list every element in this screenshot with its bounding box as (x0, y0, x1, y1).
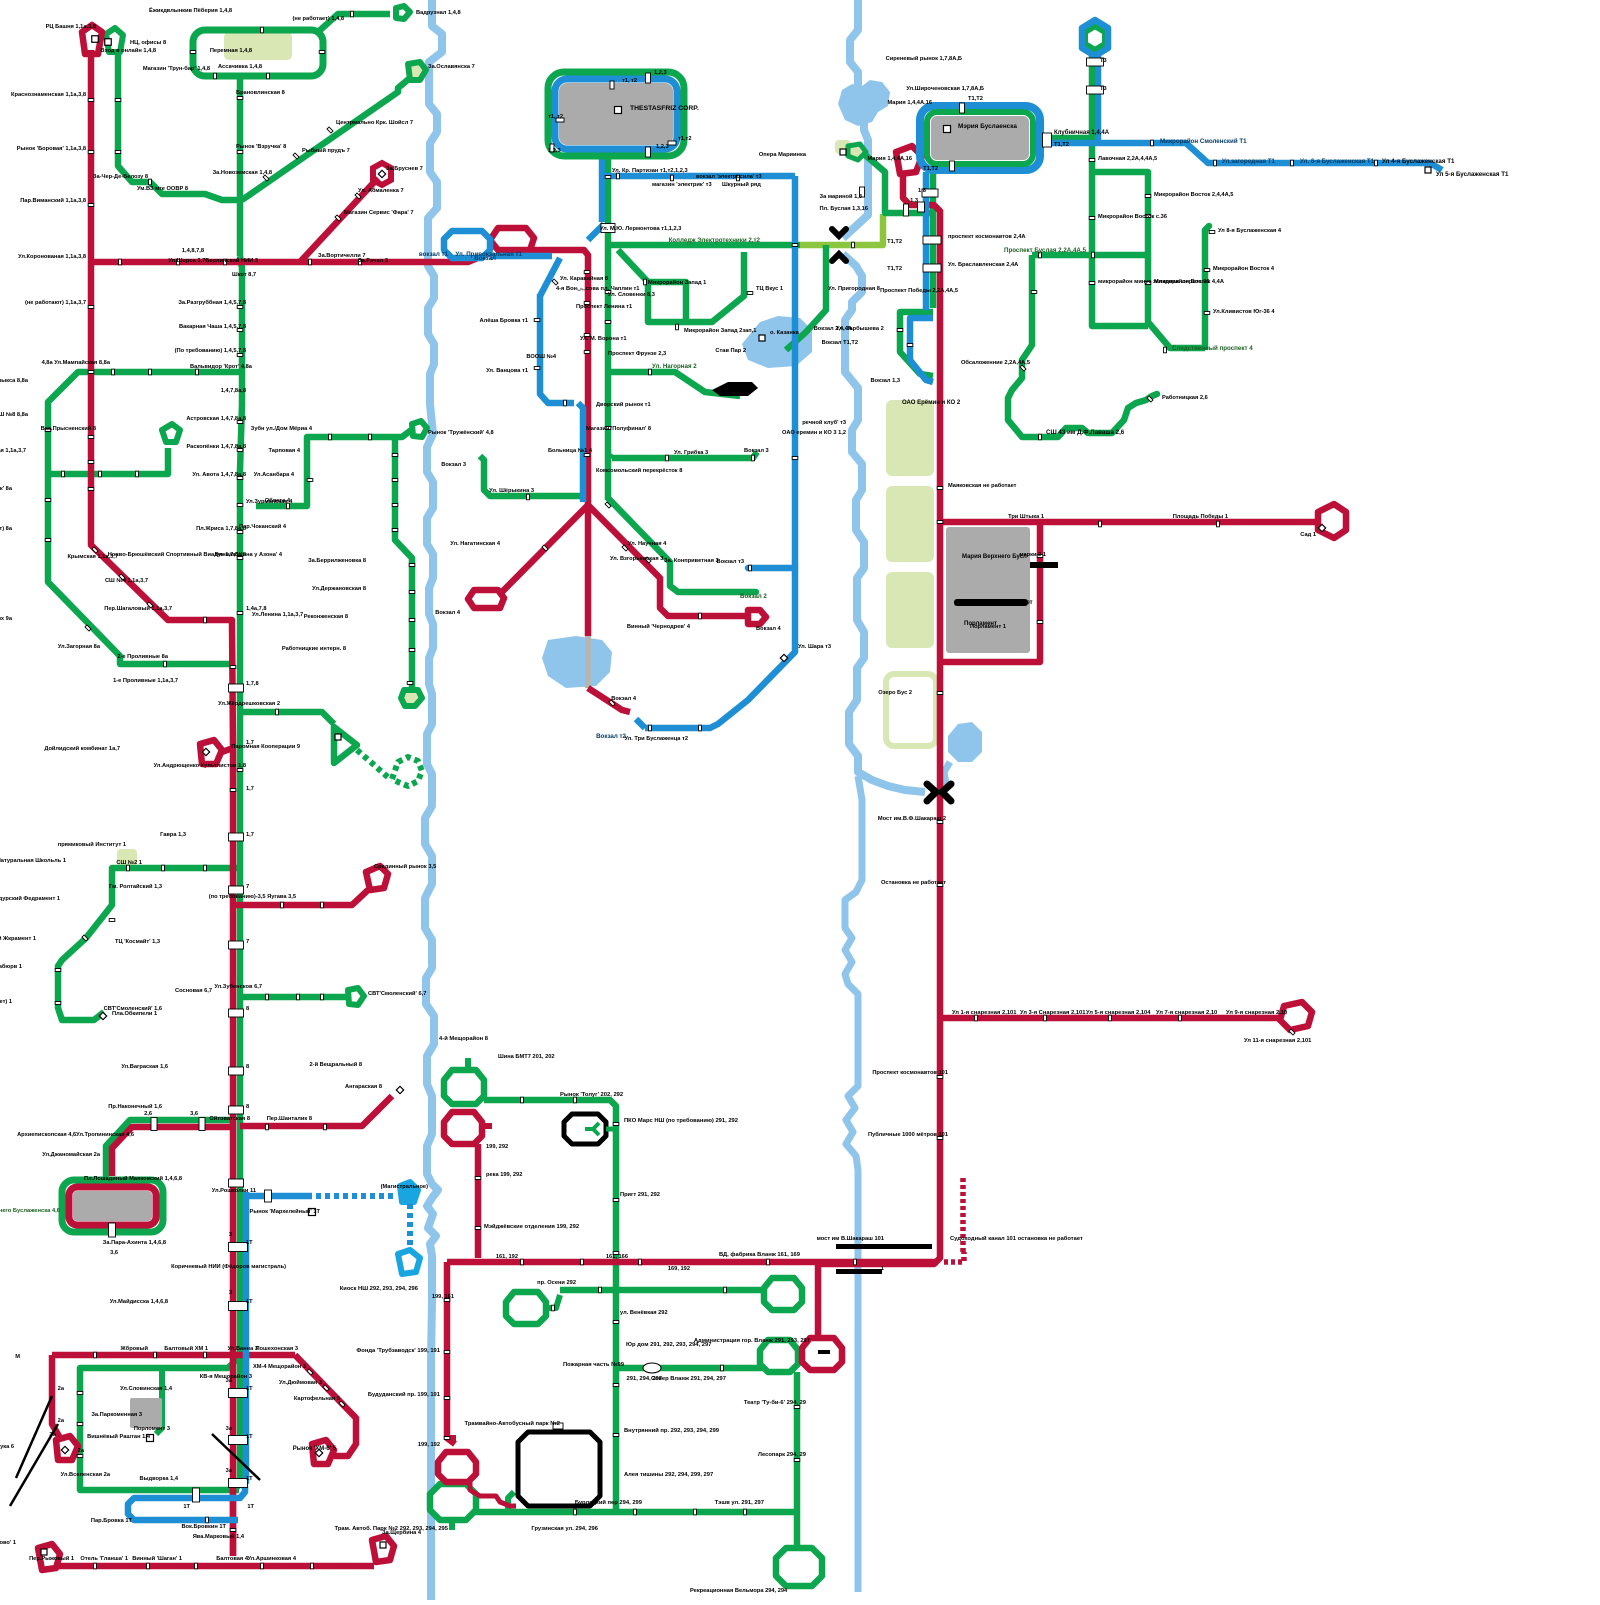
svg-text:проспект космонавтов 2,4А: проспект космонавтов 2,4А (948, 234, 1026, 240)
svg-text:Ассачивка 1,4,8: Ассачивка 1,4,8 (218, 64, 262, 70)
svg-text:7: 7 (246, 939, 249, 945)
svg-text:Вокзал 3: Вокзал 3 (744, 448, 769, 454)
svg-text:Мария 1,4,4А,16: Мария 1,4,4А,16 (887, 100, 932, 106)
svg-text:Вальвидор 'Крот' 4,8а: Вальвидор 'Крот' 4,8а (190, 364, 253, 370)
svg-text:Ул 7-я снарезная 2,10: Ул 7-я снарезная 2,10 (1156, 1010, 1217, 1016)
svg-text:Публичные 1000 мётров 101: Публичные 1000 мётров 101 (868, 1131, 948, 1138)
svg-text:Ойтоватская 8: Ойтоватская 8 (209, 1115, 250, 1122)
svg-text:Ул. М. Ворона т1: Ул. М. Ворона т1 (580, 336, 627, 342)
svg-text:Архиепископская 4,6Ул.Тропинин: Архиепископская 4,6Ул.Тропининская 4,6 (17, 1132, 134, 1138)
svg-text:ул. Венёвкая 292: ул. Венёвкая 292 (620, 1310, 668, 1316)
svg-text:Т1,Т2: Т1,Т2 (968, 96, 983, 102)
svg-text:Колледж Электротехники 2,т2: Колледж Электротехники 2,т2 (669, 237, 761, 244)
svg-text:1,7: 1,7 (246, 786, 254, 792)
svg-text:Алея тишины 292, 294, 299, 297: Алея тишины 292, 294, 299, 297 (624, 1472, 713, 1478)
svg-text:Лавочная 2,2А,4,4А,5: Лавочная 2,2А,4,4А,5 (1098, 156, 1157, 162)
svg-text:169, 192: 169, 192 (668, 1266, 690, 1272)
svg-text:Мария 1,4,4А,16: Мария 1,4,4А,16 (867, 156, 912, 162)
svg-text:речной клуб' т3: речной клуб' т3 (802, 419, 846, 426)
svg-text:Дворский рынок т1: Дворский рынок т1 (596, 401, 651, 408)
svg-text:1,4,8,7,8: 1,4,8,7,8 (182, 248, 204, 254)
svg-text:Дойлидский комбинат 1а,7: Дойлидский комбинат 1а,7 (44, 745, 120, 752)
svg-text:Бурлацкий пер 294, 299: Бурлацкий пер 294, 299 (575, 1499, 643, 1506)
svg-text:Ул.Шорса 3,7Берлинский НИИ 3: Ул.Шорса 3,7Берлинский НИИ 3 (168, 257, 258, 264)
svg-text:(по требованию)-3,5 Яугава 3,5: (по требованию)-3,5 Яугава 3,5 (209, 893, 296, 900)
svg-text:Комсомольский перекрёсток 8: Комсомольский перекрёсток 8 (596, 467, 682, 474)
svg-text:Ул. Словенки 8,3: Ул. Словенки 8,3 (608, 292, 655, 298)
svg-text:Тарповая 4: Тарповая 4 (268, 448, 300, 454)
svg-text:Больница №1 4: Больница №1 4 (548, 448, 593, 454)
svg-text:Балтовая 4: Балтовая 4 (216, 1556, 249, 1562)
svg-text:Гм. Ролтайский 1,3: Гм. Ролтайский 1,3 (109, 883, 162, 890)
svg-text:Порламент 1: Порламент 1 (970, 624, 1006, 630)
svg-text:Тэшв ул. 291, 297: Тэшв ул. 291, 297 (715, 1500, 764, 1506)
svg-text:1,2,3: 1,2,3 (548, 148, 561, 154)
svg-text:1,3: 1,3 (910, 198, 918, 204)
svg-text:Фонда 'Трубзаводск' 199, 191: Фонда 'Трубзаводск' 199, 191 (356, 1347, 440, 1354)
svg-text:8: 8 (246, 1104, 249, 1110)
svg-text:Вход в онлайн 1,4,8: Вход в онлайн 1,4,8 (100, 47, 156, 54)
svg-text:(По требованию) 1,4,5,7,8: (По требованию) 1,4,5,7,8 (175, 347, 246, 354)
svg-text:Ул.Асанбара 4: Ул.Асанбара 4 (254, 471, 295, 478)
svg-text:Ул.Словинская 1,4: Ул.Словинская 1,4 (120, 1386, 173, 1392)
svg-text:Ул.Ванна 3: Ул.Ванна 3 (228, 1346, 258, 1352)
svg-text:1Т: 1Т (247, 1504, 254, 1510)
svg-text:Пл. Буслая 1,3,16: Пл. Буслая 1,3,16 (819, 206, 868, 212)
svg-text:Т1,Т2: Т1,Т2 (887, 239, 902, 245)
svg-text:ПКО Марс НШ (по требованию) 29: ПКО Марс НШ (по требованию) 291, 292 (624, 1117, 738, 1124)
svg-text:Т3: Т3 (1100, 58, 1107, 64)
svg-text:4-й Мещорайон 8: 4-й Мещорайон 8 (439, 1035, 489, 1042)
svg-text:За.Беррилженовка 8: За.Беррилженовка 8 (308, 558, 366, 564)
svg-text:Зубн ул./Дом Мёриа 4: Зубн ул./Дом Мёриа 4 (251, 425, 313, 432)
svg-text:Ул 3-я Снарезная 2,101: Ул 3-я Снарезная 2,101 (1020, 1010, 1086, 1016)
svg-text:Ул 8-я Буслаженская 4: Ул 8-я Буслаженская 4 (1218, 228, 1282, 234)
svg-text:Мэйджёвские отделения 199, 292: Мэйджёвские отделения 199, 292 (484, 1223, 579, 1230)
svg-text:Клубничная 1,4,4А: Клубничная 1,4,4А (1054, 129, 1110, 136)
svg-text:1: 1 (881, 1266, 884, 1272)
svg-text:Астровская 1,4,7,8а,8: Астровская 1,4,7,8а,8 (186, 416, 246, 422)
svg-text:Ул. Каравайная 8: Ул. Каравайная 8 (560, 275, 608, 282)
svg-text:1,4,7,8а,8: 1,4,7,8а,8 (221, 388, 246, 394)
svg-text:Ул.Ленина 1,1а,3,7: Ул.Ленина 1,1а,3,7 (252, 612, 303, 618)
svg-text:Вокзал 4: Вокзал 4 (435, 610, 461, 616)
svg-text:161, 192: 161, 192 (496, 1254, 518, 1260)
svg-text:Винная'Шина у Азона' 4: Винная'Шина у Азона' 4 (215, 552, 283, 558)
svg-text:Ул. Шёрыкина 3: Ул. Шёрыкина 3 (489, 488, 534, 494)
svg-text:За мариной 1,3: За мариной 1,3 (820, 193, 862, 200)
svg-text:За.Ославянска 7: За.Ославянска 7 (428, 64, 475, 70)
svg-text:Опера Мариинка: Опера Мариинка (759, 152, 807, 158)
svg-text:РЦ Башня 1,1а,3,8: РЦ Башня 1,1а,3,8 (46, 24, 96, 30)
svg-text:За.Разгруббная 1,4,5,7,8: За.Разгруббная 1,4,5,7,8 (178, 299, 246, 306)
svg-text:Работницкая 2,6: Работницкая 2,6 (1162, 394, 1208, 401)
svg-text:За.Пара-Ахинта 1,4,6,8: За.Пара-Ахинта 1,4,6,8 (103, 1240, 166, 1246)
svg-text:Вокзал т2: Вокзал т2 (596, 733, 626, 740)
svg-text:199, 161: 199, 161 (432, 1294, 454, 1300)
svg-text:2-й Вещральный 8: 2-й Вещральный 8 (310, 1061, 362, 1068)
svg-text:Ул.Ваграская 1,6: Ул.Ваграская 1,6 (121, 1064, 168, 1070)
svg-text:Ул.Дюймовая 3: Ул.Дюймовая 3 (279, 1379, 322, 1386)
svg-text:1Т: 1Т (246, 1240, 253, 1246)
svg-text:Винный 'Шаган' 1: Винный 'Шаган' 1 (132, 1555, 182, 1562)
svg-text:Вакарная Чаша 1,4,5,7,8: Вакарная Чаша 1,4,5,7,8 (179, 324, 246, 330)
svg-text:Вокзал 3: Вокзал 3 (441, 462, 466, 468)
svg-text:Микрорайон Восток 4,4А: Микрорайон Восток 4,4А (1154, 278, 1224, 285)
svg-text:Ул.Жёрдрешковская 2: Ул.Жёрдрешковская 2 (218, 701, 280, 707)
svg-text:Вас.Прысненский 8: Вас.Прысненский 8 (41, 425, 96, 432)
svg-text:НЦ, офисы 8: НЦ, офисы 8 (130, 39, 166, 46)
svg-text:Сад 1: Сад 1 (1300, 532, 1316, 538)
svg-text:Ангараская 8: Ангараская 8 (345, 1084, 382, 1090)
svg-text:Центрмально Крк. Шойсл 7: Центрмально Крк. Шойсл 7 (336, 119, 413, 126)
svg-text:СВТ'Смоленский' 6,7: СВТ'Смоленский' 6,7 (368, 990, 426, 997)
svg-text:Ул. Пригородная 8: Ул. Пригородная 8 (828, 286, 880, 292)
svg-text:Вокзал Т1,Т2: Вокзал Т1,Т2 (822, 340, 858, 346)
svg-text:пр. Осени 292: пр. Осени 292 (537, 1280, 576, 1286)
svg-text:Остановка не работает: Остановка не работает (964, 599, 1033, 606)
svg-text:Пар.Виманский 1,1а,3,8: Пар.Виманский 1,1а,3,8 (20, 197, 86, 204)
svg-text:1Т: 1Т (246, 1299, 253, 1305)
svg-text:За.Рэчел 3: За.Рэчел 3 (358, 258, 388, 264)
svg-text:Ул. Нагатинская 4: Ул. Нагатинская 4 (450, 541, 501, 547)
svg-text:2а: 2а (58, 1386, 65, 1392)
svg-text:Микрорайон Восток 4: Микрорайон Восток 4 (1213, 265, 1275, 272)
svg-text:Ул. Ванцова т1: Ул. Ванцова т1 (486, 368, 528, 374)
svg-text:СШ №4 1,1а,3,7: СШ №4 1,1а,3,7 (105, 578, 148, 584)
svg-text:1,7,8: 1,7,8 (246, 681, 259, 687)
svg-text:Проспект Фрунзе 2,3: Проспект Фрунзе 2,3 (608, 351, 666, 357)
svg-text:Ул.Майдисска 1,4,6,8: Ул.Майдисска 1,4,6,8 (110, 1298, 168, 1305)
svg-text:199, 292: 199, 292 (486, 1144, 508, 1150)
svg-text:Север Вланж 291, 294, 297: Север Вланж 291, 294, 297 (651, 1376, 726, 1382)
svg-text:1,2,3: 1,2,3 (656, 144, 669, 150)
svg-text:1Т: 1Т (183, 1504, 190, 1510)
svg-text:Натуральная Школьль 1: Натуральная Школьль 1 (0, 858, 66, 864)
svg-text:Сосновая 6,7: Сосновая 6,7 (175, 988, 212, 994)
svg-text:2,6: 2,6 (144, 1111, 152, 1117)
svg-text:Ул 4-я Буслаженская Т1: Ул 4-я Буслаженская Т1 (1382, 158, 1455, 165)
svg-text:Выдворка 1,4: Выдворка 1,4 (140, 1476, 179, 1482)
svg-text:Паромная Кооперации 9: Паромная Кооперации 9 (231, 744, 300, 750)
svg-text:Вокзал 2: Вокзал 2 (740, 593, 767, 600)
svg-text:Ул. М.Ю. Лермонтова т1,1,2,3: Ул. М.Ю. Лермонтова т1,1,2,3 (600, 226, 681, 232)
svg-text:Ул. Три Буслаженца т2: Ул. Три Буслаженца т2 (624, 736, 688, 742)
svg-text:Пер.Шагаловый 1,1а,3,7: Пер.Шагаловый 1,1а,3,7 (104, 605, 172, 612)
svg-text:Ул 9-я снарезная 2,10: Ул 9-я снарезная 2,10 (1226, 1010, 1287, 1016)
svg-text:Проспект Победы 2,2А,4А,5: Проспект Победы 2,2А,4А,5 (880, 287, 958, 294)
svg-text:ТЦ 'Космайт' 1,3: ТЦ 'Космайт' 1,3 (115, 938, 160, 945)
svg-text:Ул. 'Тандлжёсик' 8а: Ул. 'Тандлжёсик' 8а (0, 486, 13, 492)
svg-text:Ул.Андрющенко Культлистов 1,8: Ул.Андрющенко Культлистов 1,8 (154, 763, 246, 769)
svg-text:Площадь Победы 1: Площадь Победы 1 (1173, 513, 1228, 520)
svg-text:Ул.Вселенская 2а: Ул.Вселенская 2а (61, 1472, 111, 1478)
svg-text:Театр 'Ту-би-6' 294, 29: Театр 'Ту-би-6' 294, 29 (744, 1399, 807, 1406)
svg-text:ОАО Ерёмин и КО 2: ОАО Ерёмин и КО 2 (902, 400, 961, 406)
svg-text:Сваленская 1,1а,3,7: Сваленская 1,1а,3,7 (0, 448, 26, 454)
svg-text:Вокзал 2,4,4А: Вокзал 2,4,4А (814, 326, 852, 332)
svg-text:Ул. Авота 1,4,7,8а,8: Ул. Авота 1,4,7,8а,8 (192, 472, 246, 478)
svg-text:(не работает) 8а: (не работает) 8а (0, 525, 13, 532)
svg-text:8: 8 (246, 1006, 249, 1012)
svg-text:Брановлинская 8: Брановлинская 8 (236, 90, 285, 96)
svg-text:река 199, 292: река 199, 292 (486, 1172, 522, 1178)
svg-text:Дом для престарелых 9а: Дом для престарелых 9а (0, 616, 13, 622)
svg-text:Магазин 'Трун-бар' 1,4,8: Магазин 'Трун-бар' 1,4,8 (143, 65, 210, 72)
svg-text:8: 8 (246, 1064, 249, 1070)
svg-text:Мэрия Буслаенска: Мэрия Буслаенска (958, 123, 1017, 130)
svg-text:Вокзал т3: Вокзал т3 (717, 559, 745, 565)
svg-text:Судоходный канал 101 остановка: Судоходный канал 101 остановка не работа… (950, 1235, 1083, 1242)
svg-text:Следственный проспект 4: Следственный проспект 4 (1172, 345, 1253, 352)
svg-text:1,7: 1,7 (246, 832, 254, 838)
svg-text:М: М (15, 1354, 20, 1360)
svg-text:т1,т2: т1,т2 (678, 136, 691, 142)
svg-text:Будуданский пр. 199, 191: Будуданский пр. 199, 191 (368, 1391, 441, 1398)
svg-text:Ул.Аршинковая 4: Ул.Аршинковая 4 (247, 1556, 296, 1562)
svg-text:Ул. Научная 4: Ул. Научная 4 (628, 541, 667, 547)
svg-text:3а: 3а (226, 1378, 233, 1384)
svg-text:Киоск НШ 292, 293, 294, 296: Киоск НШ 292, 293, 294, 296 (340, 1286, 419, 1292)
svg-text:Микрорайон Запад 1: Микрорайон Запад 1 (648, 279, 706, 286)
svg-text:Озеро Бус 2: Озеро Бус 2 (878, 690, 912, 696)
svg-text:Работницкие интерн. 8: Работницкие интерн. 8 (282, 645, 346, 652)
svg-text:Ул 5-я Буслаженская Т1: Ул 5-я Буслаженская Т1 (1436, 171, 1509, 178)
svg-text:Рынок 'Тружёнский' 4,8: Рынок 'Тружёнский' 4,8 (428, 429, 494, 436)
svg-text:Трам. Автоб. Парк №2 292, 293,: Трам. Автоб. Парк №2 292, 293, 294, 295 (335, 1525, 449, 1532)
svg-text:Мария Нижнего Буслаженска 4,6: Мария Нижнего Буслаженска 4,6 (0, 1208, 61, 1214)
svg-text:ВД, фабрика Вланж 161, 169: ВД, фабрика Вланж 161, 169 (719, 1251, 801, 1258)
svg-text:Администрация гор. Вланж 291,: Администрация гор. Вланж 291, 293, 297 (694, 1338, 810, 1344)
svg-text:Ул. Шара т3: Ул. Шара т3 (798, 644, 831, 650)
svg-text:3,6: 3,6 (190, 1111, 198, 1117)
svg-text:Т1,Т2: Т1,Т2 (1054, 142, 1069, 148)
svg-text:Шкурный ряд: Шкурный ряд (722, 181, 761, 188)
svg-text:Ул.Рошколаи 11: Ул.Рошколаи 11 (212, 1188, 256, 1194)
svg-text:(не работает) 1,4,8: (не работает) 1,4,8 (292, 15, 344, 22)
svg-text:Буфетофейный Жкрамент 1: Буфетофейный Жкрамент 1 (0, 935, 36, 942)
svg-text:За. Конприветная 3: За. Конприветная 3 (664, 558, 719, 564)
svg-text:Мост им.В.Ф.Шакараш 2: Мост им.В.Ф.Шакараш 2 (878, 816, 946, 822)
svg-text:Вокзал 4: Вокзал 4 (611, 696, 637, 702)
svg-text:Ул 11-я снарезная 2,101: Ул 11-я снарезная 2,101 (1244, 1038, 1312, 1044)
svg-text:Ул 1-я снарезная 2,101: Ул 1-я снарезная 2,101 (952, 1010, 1017, 1016)
svg-text:Пожарная часть №99: Пожарная часть №99 (563, 1362, 625, 1368)
svg-text:Облата 4: Облата 4 (265, 497, 291, 504)
svg-text:THESTASFRIZ CORP.: THESTASFRIZ CORP. (630, 105, 699, 112)
svg-text:Ул 5-я снарезная 2,104: Ул 5-я снарезная 2,104 (1086, 1010, 1151, 1016)
svg-text:ОАО еремин и КО 3 1,2: ОАО еремин и КО 3 1,2 (782, 430, 846, 436)
svg-text:199, 192: 199, 192 (418, 1442, 440, 1448)
svg-text:Т3: Т3 (1100, 86, 1107, 92)
svg-text:Микрорайон Восток 2,4,4А,5: Микрорайон Восток 2,4,4А,5 (1154, 191, 1233, 198)
svg-text:Ул. Взгорьевская 3: Ул. Взгорьевская 3 (610, 556, 663, 562)
svg-text:Пар.Чоканский 4: Пар.Чоканский 4 (239, 523, 287, 530)
svg-text:Внутрянний пр. 292, 293, 294,: Внутрянний пр. 292, 293, 294, 299 (624, 1427, 720, 1434)
svg-text:Картофельная 5: Картофельная 5 (294, 1395, 340, 1402)
svg-text:Брыкса 8,8а: Брыкса 8,8а (0, 378, 29, 384)
svg-text:Ст. 'Полоново' 1: Ст. 'Полоново' 1 (0, 1540, 16, 1546)
svg-text:т1, т2: т1, т2 (622, 78, 637, 84)
svg-text:Пригт 291, 292: Пригт 291, 292 (620, 1192, 660, 1198)
svg-text:Пар.Бровка 1Т: Пар.Бровка 1Т (91, 1518, 133, 1524)
svg-text:СВТ'Смоленский' 1,6: СВТ'Смоленский' 1,6 (104, 1005, 162, 1012)
svg-text:3: 3 (229, 1232, 232, 1238)
svg-text:3а: 3а (226, 1468, 233, 1474)
svg-text:Ул.Загорная 8а: Ул.Загорная 8а (58, 644, 101, 650)
svg-text:Ул. Браславленская 2,4А: Ул. Браславленская 2,4А (948, 262, 1018, 268)
svg-text:Ул.Зубенсков 6,7: Ул.Зубенсков 6,7 (214, 983, 262, 990)
svg-text:Ул. Привокзальная т1: Ул. Привокзальная т1 (455, 251, 522, 258)
svg-text:Ул. Нагорная 2: Ул. Нагорная 2 (652, 363, 697, 370)
svg-text:Срединный рынок 3,5: Срединный рынок 3,5 (374, 863, 436, 870)
svg-text:Станозапад Фкарука 6: Станозапад Фкарука 6 (0, 1444, 14, 1450)
svg-text:Ул.Коронованая 1,1а,3,8: Ул.Коронованая 1,1а,3,8 (18, 254, 86, 260)
svg-text:Шина БМТ7 201, 202: Шина БМТ7 201, 202 (498, 1054, 555, 1060)
svg-text:4,8а Ул.Мампайская 8,8а: 4,8а Ул.Мампайская 8,8а (42, 359, 111, 366)
svg-text:Раскопёнки 1,4,7,8а,8: Раскопёнки 1,4,7,8а,8 (186, 444, 246, 450)
svg-text:Ул. Кр. Партизан т1,т2,1,2,3: Ул. Кр. Партизан т1,т2,1,2,3 (612, 168, 688, 174)
svg-text:о. Казанка: о. Казанка (770, 330, 800, 336)
svg-text:СШ 43 им Д.Ф.Лаваша 2,6: СШ 43 им Д.Ф.Лаваша 2,6 (1046, 429, 1125, 436)
svg-text:Обсаложенние 2,2А,4А,5: Обсаложенние 2,2А,4А,5 (961, 359, 1030, 366)
svg-text:Ул.Широченовская 1,7,8А,Б: Ул.Широченовская 1,7,8А,Б (906, 86, 984, 92)
svg-text:Мария Верхнего Бусл: Мария Верхнего Бусл (962, 554, 1027, 560)
svg-text:Рынок 'Мархелейный' 1Т: Рынок 'Мархелейный' 1Т (250, 1208, 321, 1215)
svg-text:Ум.ВЗ мге ООВР 8: Ум.ВЗ мге ООВР 8 (137, 186, 188, 192)
svg-text:Пр.Наконечный 1,6: Пр.Наконечный 1,6 (108, 1103, 162, 1110)
svg-text:Ул.Джаномайская 2а: Ул.Джаномайская 2а (42, 1151, 101, 1158)
svg-text:Пер.Шанталик 8: Пер.Шанталик 8 (267, 1116, 312, 1122)
svg-text:Проспект Буслая 2,2А,4А,5: Проспект Буслая 2,2А,4А,5 (1004, 247, 1087, 254)
svg-text:3,6: 3,6 (110, 1250, 118, 1256)
svg-text:2а: 2а (58, 1418, 65, 1424)
svg-text:Микрорайон Восток с.36: Микрорайон Восток с.36 (1098, 213, 1167, 220)
svg-text:1,2,3: 1,2,3 (654, 70, 667, 76)
svg-text:Проспект Ленина т1: Проспект Ленина т1 (576, 304, 632, 310)
svg-text:Вадрузнал 1,4,8: Вадрузнал 1,4,8 (416, 10, 461, 16)
svg-text:Вишнёвый Раштан 1,4: Вишнёвый Раштан 1,4 (87, 1433, 151, 1440)
svg-text:3а: 3а (226, 1426, 233, 1432)
svg-text:1Т: 1Т (246, 1434, 253, 1440)
svg-text:Коричневый НИИ (Фёдоров магист: Коричневый НИИ (Фёдоров магистраль) (171, 1263, 286, 1270)
svg-text:Вок.Бровкин 1Т: Вок.Бровкин 1Т (181, 1524, 226, 1530)
svg-text:Шкот 8,7: Шкот 8,7 (232, 272, 256, 278)
svg-text:1Т: 1Т (246, 1386, 253, 1392)
svg-text:За: За (49, 1432, 57, 1438)
svg-text:Пер.Рыжовый 1: Пер.Рыжовый 1 (29, 1555, 74, 1562)
svg-text:Вокзал 1,3: Вокзал 1,3 (871, 378, 900, 384)
svg-text:Сиреневый рынок 1,7,8А,Б: Сиреневый рынок 1,7,8А,Б (886, 55, 962, 62)
svg-text:вокзал т1: вокзал т1 (419, 251, 449, 258)
svg-text:Реконженская 8: Реконженская 8 (304, 614, 348, 620)
svg-text:Маяковская не работает: Маяковская не работает (948, 482, 1017, 489)
svg-text:Ул.загородная Т1: Ул.загородная Т1 (1222, 158, 1276, 165)
svg-text:Грузинская ул. 294, 296: Грузинская ул. 294, 296 (531, 1526, 598, 1532)
svg-text:ХМ-4 Мещорайон 3: ХМ-4 Мещорайон 3 (253, 1363, 306, 1370)
svg-text:Т1,Т2: Т1,Т2 (887, 266, 902, 272)
svg-text:Пошехонская 3: Пошехонская 3 (255, 1346, 298, 1352)
svg-text:Рыбный прудъ 7: Рыбный прудъ 7 (302, 147, 350, 154)
svg-text:Рынок 'Боровая' 1,1а,3,8: Рынок 'Боровая' 1,1а,3,8 (17, 146, 86, 152)
svg-text:Ява.Марковый 1,4: Ява.Марковый 1,4 (193, 1533, 245, 1540)
svg-text:Трамвайно-Автобусный парк №2: Трамвайно-Автобусный парк №2 (465, 1420, 561, 1427)
svg-text:Перемная 1,4,8: Перемная 1,4,8 (210, 48, 252, 54)
svg-text:Ул. Грибка 3: Ул. Грибка 3 (674, 449, 708, 456)
svg-text:1-е Проливные 1,1а,3,7: 1-е Проливные 1,1а,3,7 (113, 678, 178, 684)
svg-text:Став Пар 2: Став Пар 2 (715, 348, 746, 354)
svg-text:Алёша Бровка т1: Алёша Бровка т1 (480, 318, 528, 324)
svg-text:1,8: 1,8 (918, 188, 926, 194)
svg-text:Отель 'Гланша' 1: Отель 'Гланша' 1 (80, 1556, 128, 1562)
svg-text:Ул. 6-я Буслаженская Т1: Ул. 6-я Буслаженская Т1 (1300, 158, 1375, 165)
svg-text:1Т: 1Т (246, 1476, 253, 1482)
svg-text:Проспект космонавтов 101: Проспект космонавтов 101 (872, 1070, 948, 1076)
svg-text:прямиковый Институт 1: прямиковый Институт 1 (58, 841, 126, 848)
svg-text:Рекреационная Вельмора 294, 29: Рекреационная Вельмора 294, 294 (690, 1588, 788, 1594)
svg-text:(не работает) 1: (не работает) 1 (0, 998, 12, 1005)
svg-text:Рынок 'Взручка' 8: Рынок 'Взручка' 8 (236, 144, 286, 150)
svg-text:Гавра 1,3: Гавра 1,3 (160, 832, 186, 838)
svg-text:Лесопарк 294, 29: Лесопарк 294, 29 (758, 1452, 807, 1458)
svg-text:7: 7 (246, 884, 249, 890)
svg-text:Порломент 3: Порломент 3 (134, 1426, 170, 1432)
svg-text:Магазин Сервис 'Фара' 7: Магазин Сервис 'Фара' 7 (344, 210, 414, 216)
svg-text:(не работают) 1,1а,3,7: (не работают) 1,1а,3,7 (25, 299, 86, 306)
svg-text:Вокзал 4: Вокзал 4 (756, 626, 782, 632)
svg-text:вокзал 'электросила' т3: вокзал 'электросила' т3 (696, 174, 762, 180)
svg-text:Три Штыка 1: Три Штыка 1 (1008, 514, 1044, 520)
svg-text:Рынок 'Толуг' 202, 292: Рынок 'Толуг' 202, 292 (560, 1092, 623, 1098)
svg-text:Рынок 'ХМ-6' 5: Рынок 'ХМ-6' 5 (293, 1446, 337, 1452)
svg-text:Ул. Абмаленка 7: Ул. Абмаленка 7 (358, 187, 404, 194)
svg-text:Винный 'Чернодрев' 4: Винный 'Чернодрев' 4 (627, 623, 691, 630)
svg-text:За.Бруснев 7: За.Бруснев 7 (386, 166, 423, 172)
svg-text:магазин 'электрик' т3: магазин 'электрик' т3 (652, 182, 712, 188)
svg-text:СШ №8 8,8а: СШ №8 8,8а (0, 412, 29, 418)
svg-text:Зяабюрв 1: Зяабюрв 1 (0, 963, 22, 970)
svg-text:Ёжикдвлынкив Пёберия 1,4,8: Ёжикдвлынкив Пёберия 1,4,8 (149, 7, 232, 14)
svg-text:т1, т2: т1, т2 (548, 114, 563, 120)
svg-text:Ул.Кливистов Юг-36 4: Ул.Кливистов Юг-36 4 (1213, 309, 1275, 315)
svg-text:ТЦ Вкус 1: ТЦ Вкус 1 (756, 286, 783, 292)
svg-text:161, 166: 161, 166 (606, 1254, 628, 1260)
svg-text:Т1,Т2: Т1,Т2 (923, 166, 938, 172)
svg-text:Краснознаменская 1,1а,3,8: Краснознаменская 1,1а,3,8 (11, 92, 86, 98)
svg-text:За.Паркоменная 3: За.Паркоменная 3 (91, 1412, 142, 1418)
svg-text:Остановка не работает: Остановка не работает (881, 879, 946, 886)
svg-text:3: 3 (229, 1290, 232, 1296)
svg-text:За-Чер-Де-Белозу 8: За-Чер-Де-Белозу 8 (93, 174, 148, 180)
svg-text:Жбровый: Жбровый (120, 1345, 149, 1352)
svg-text:мост им В.Шакараш 101: мост им В.Шакараш 101 (817, 1236, 884, 1242)
svg-text:Микрорайон Запад 2зап,1: Микрорайон Запад 2зап,1 (684, 327, 756, 334)
svg-text:(Магистральное): (Магистральное) (381, 1184, 428, 1190)
svg-text:Магазин 'Полуфинал' 8: Магазин 'Полуфинал' 8 (586, 425, 651, 432)
svg-text:Микрорайон Смоленский Т1: Микрорайон Смоленский Т1 (1160, 138, 1247, 145)
svg-text:Пл.Лошадиный Маяковский 1,4,6,: Пл.Лошадиный Маяковский 1,4,6,8 (84, 1175, 182, 1182)
svg-text:Графофендурский Федрамент 1: Графофендурский Федрамент 1 (0, 895, 60, 902)
svg-text:Ул.Держановская 8: Ул.Держановская 8 (312, 586, 366, 592)
svg-text:СШ №2 1: СШ №2 1 (116, 860, 142, 866)
svg-text:2-е Проливные 8а: 2-е Проливные 8а (117, 654, 168, 660)
svg-text:За.Новоземская 1,4,8: За.Новоземская 1,4,8 (213, 170, 272, 176)
svg-text:2а: 2а (78, 1448, 85, 1454)
svg-text:Балтовый ХМ 1: Балтовый ХМ 1 (164, 1345, 208, 1352)
svg-text:ВООШ №4: ВООШ №4 (526, 354, 556, 360)
